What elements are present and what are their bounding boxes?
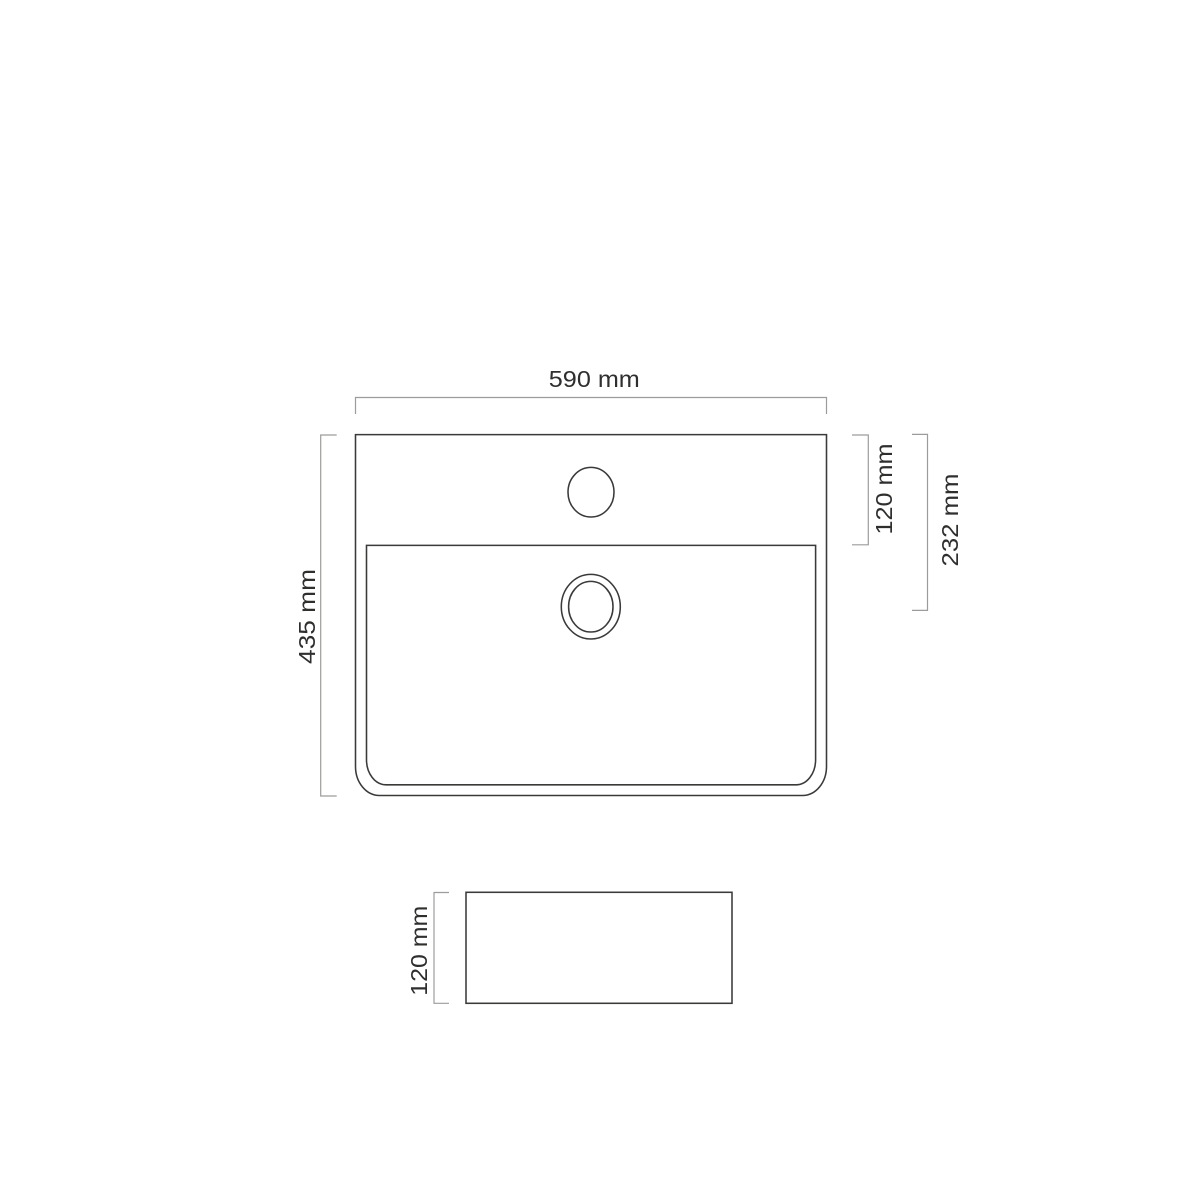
svg-text:120 mm: 120 mm — [406, 906, 432, 996]
svg-text:590 mm: 590 mm — [549, 366, 640, 392]
svg-text:435 mm: 435 mm — [294, 569, 320, 664]
svg-text:232 mm: 232 mm — [937, 474, 963, 567]
svg-text:120 mm: 120 mm — [871, 444, 897, 535]
